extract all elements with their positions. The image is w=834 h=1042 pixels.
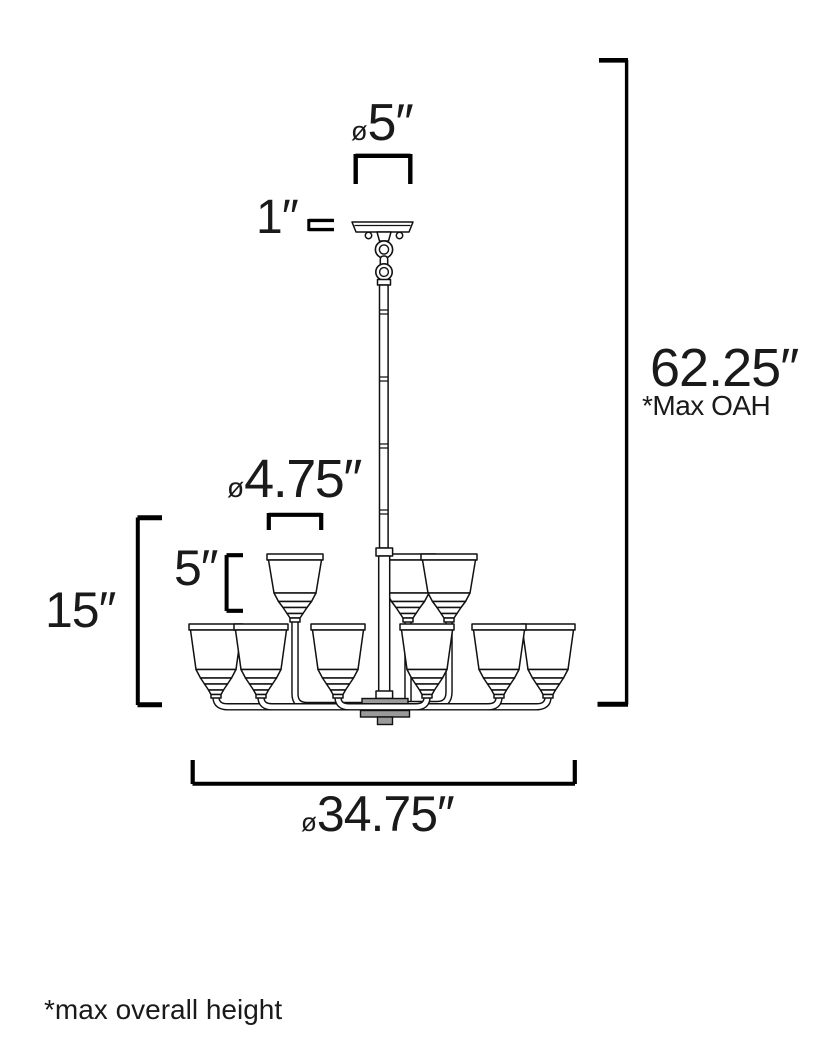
dim-value: 15″ [45, 582, 115, 638]
dim-bracket-canopy-diameter [356, 154, 411, 184]
dim-bracket-canopy-height [309, 219, 334, 231]
dim-label-max-overall-height: 62.25″ [650, 341, 798, 395]
chain-ring [376, 264, 392, 280]
dim-label-upper-shade-height: 5″ [174, 543, 218, 593]
dim-bracket-fixture-diameter [193, 760, 576, 784]
dim-value: 4.75″ [244, 449, 361, 509]
upper-shade-front-right [421, 554, 477, 622]
diagram-canvas: ø5″ 1″ 62.25″ *Max OAH ø4.75″ 5″ 15″ ø34… [0, 0, 834, 1042]
dim-label-canopy-diameter: ø5″ [351, 97, 413, 149]
dim-bracket-max-overall-height [598, 60, 629, 705]
lower-shade-5 [472, 624, 526, 698]
upper-shade-left [267, 554, 323, 622]
dim-value: 62.25″ [650, 338, 798, 398]
lower-shade-1 [189, 624, 243, 698]
canopy-screw [365, 232, 371, 238]
center-hub [361, 711, 410, 725]
diameter-symbol: ø [301, 807, 317, 837]
dim-value: 5″ [368, 94, 413, 152]
chandelier-line-drawing [0, 0, 834, 1042]
dim-value: 5″ [174, 540, 218, 596]
dim-bracket-body-height [138, 518, 163, 706]
dim-label-body-height: 15″ [45, 585, 115, 635]
footnote: *max overall height [44, 996, 282, 1024]
lower-shade-2 [234, 624, 288, 698]
upper-tier-shades [267, 554, 477, 622]
dim-label-canopy-height: 1″ [256, 194, 298, 242]
diameter-symbol: ø [227, 472, 244, 503]
dim-value: 34.75″ [317, 786, 454, 842]
hanging-chain [375, 232, 392, 285]
dim-bracket-upper-shade-height [227, 555, 244, 611]
center-column [376, 548, 393, 699]
hub-finial [378, 717, 393, 725]
dim-label-upper-shade-diameter: ø4.75″ [227, 452, 361, 506]
lower-shade-6 [521, 624, 575, 698]
lower-shade-3 [311, 624, 365, 698]
footnote-text: *max overall height [44, 994, 282, 1025]
dim-bracket-upper-shade-diameter [269, 513, 322, 530]
diameter-symbol: ø [351, 116, 368, 146]
dim-note-max-oah: *Max OAH [642, 392, 770, 420]
dim-label-fixture-diameter: ø34.75″ [301, 789, 454, 839]
down-rod [380, 285, 389, 548]
dim-note: *Max OAH [642, 390, 770, 421]
canopy-screw [396, 232, 402, 238]
dim-value: 1″ [256, 191, 298, 244]
